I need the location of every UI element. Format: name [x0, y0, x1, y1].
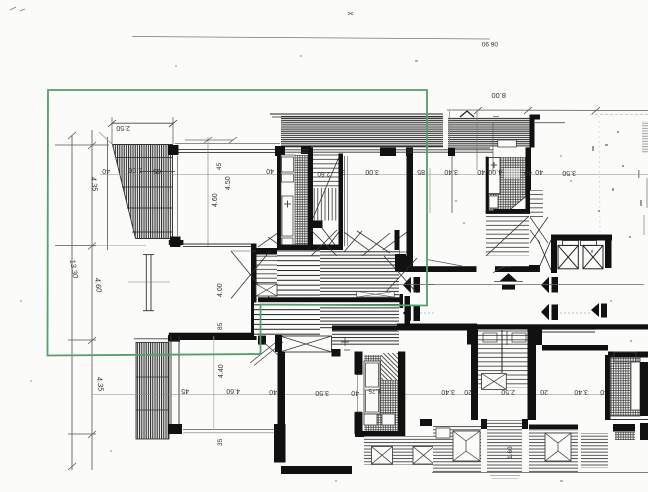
svg-text:4.40: 4.40: [218, 364, 225, 378]
svg-text:4.60: 4.60: [93, 277, 104, 293]
svg-text:20: 20: [540, 388, 548, 395]
svg-text:3.40: 3.40: [574, 388, 588, 395]
svg-text:20: 20: [464, 388, 472, 395]
svg-text:65: 65: [153, 167, 161, 174]
svg-text:40: 40: [266, 167, 274, 174]
svg-text:40: 40: [524, 169, 532, 176]
svg-text:3.50: 3.50: [562, 169, 576, 176]
svg-text:4.50: 4.50: [225, 176, 232, 190]
svg-text:3.50: 3.50: [315, 389, 329, 396]
svg-text:3.40: 3.40: [444, 168, 458, 175]
svg-text:40: 40: [535, 168, 543, 175]
svg-text:2.50: 2.50: [116, 124, 130, 131]
svg-text:4.00: 4.00: [488, 168, 502, 175]
svg-text:1.00: 1.00: [128, 166, 142, 173]
svg-text:45: 45: [181, 387, 189, 394]
svg-text:2.60: 2.60: [317, 170, 330, 177]
svg-text:4.60: 4.60: [226, 387, 240, 394]
svg-text:40: 40: [269, 388, 277, 395]
svg-text:3.40: 3.40: [441, 388, 455, 395]
svg-text:4.35: 4.35: [89, 176, 100, 192]
svg-text:35: 35: [217, 438, 224, 446]
svg-text:4.35: 4.35: [95, 376, 106, 392]
svg-text:85: 85: [417, 168, 425, 175]
svg-text:8.00: 8.00: [491, 91, 506, 100]
svg-text:40: 40: [102, 167, 110, 174]
svg-text:1.60: 1.60: [507, 446, 514, 459]
svg-text:40: 40: [477, 168, 485, 175]
svg-text:85: 85: [217, 322, 224, 330]
svg-text:4.60: 4.60: [212, 193, 219, 207]
svg-text:45: 45: [216, 162, 223, 170]
svg-text:1.75: 1.75: [368, 387, 381, 394]
svg-text:4.00: 4.00: [217, 283, 224, 297]
svg-text:3.00: 3.00: [365, 168, 379, 175]
svg-text:06 90: 06 90: [481, 40, 498, 47]
